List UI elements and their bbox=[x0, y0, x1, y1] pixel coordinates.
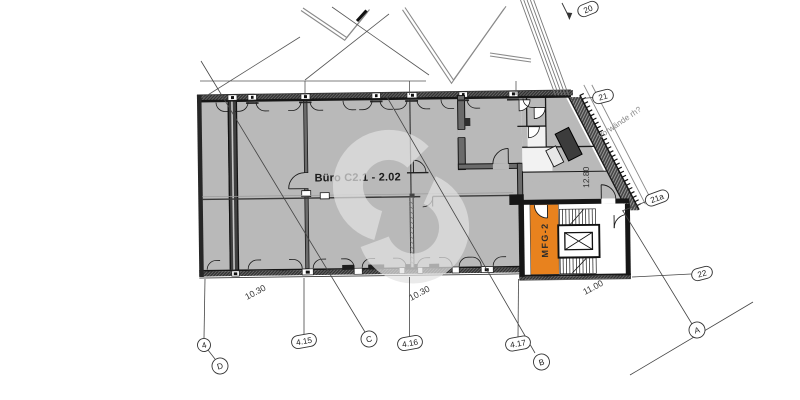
svg-text:MFG-2: MFG-2 bbox=[540, 222, 550, 257]
svg-text:12.80: 12.80 bbox=[581, 166, 591, 188]
svg-text:10.30: 10.30 bbox=[243, 283, 267, 302]
svg-text:11.00: 11.00 bbox=[581, 278, 605, 297]
svg-text:10.30: 10.30 bbox=[407, 284, 431, 303]
